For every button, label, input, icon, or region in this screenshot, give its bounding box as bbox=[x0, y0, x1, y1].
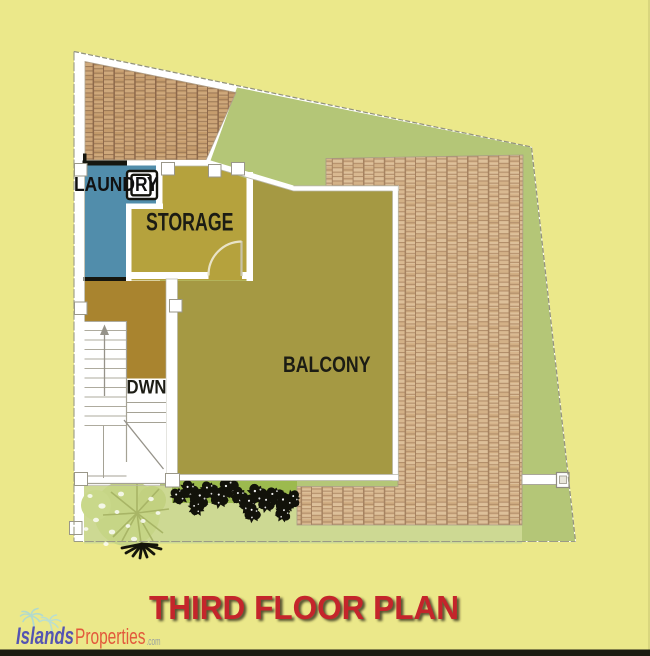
svg-text:DWN: DWN bbox=[127, 377, 167, 399]
svg-text:.com: .com bbox=[147, 636, 161, 648]
svg-text:STORAGE: STORAGE bbox=[146, 209, 234, 237]
svg-text:Properties: Properties bbox=[75, 624, 146, 649]
svg-text:Islands: Islands bbox=[16, 623, 74, 650]
svg-text:BALCONY: BALCONY bbox=[283, 352, 371, 377]
svg-text:LAUNDRY: LAUNDRY bbox=[74, 173, 159, 196]
svg-text:THIRD FLOOR PLAN: THIRD FLOOR PLAN bbox=[149, 589, 459, 626]
